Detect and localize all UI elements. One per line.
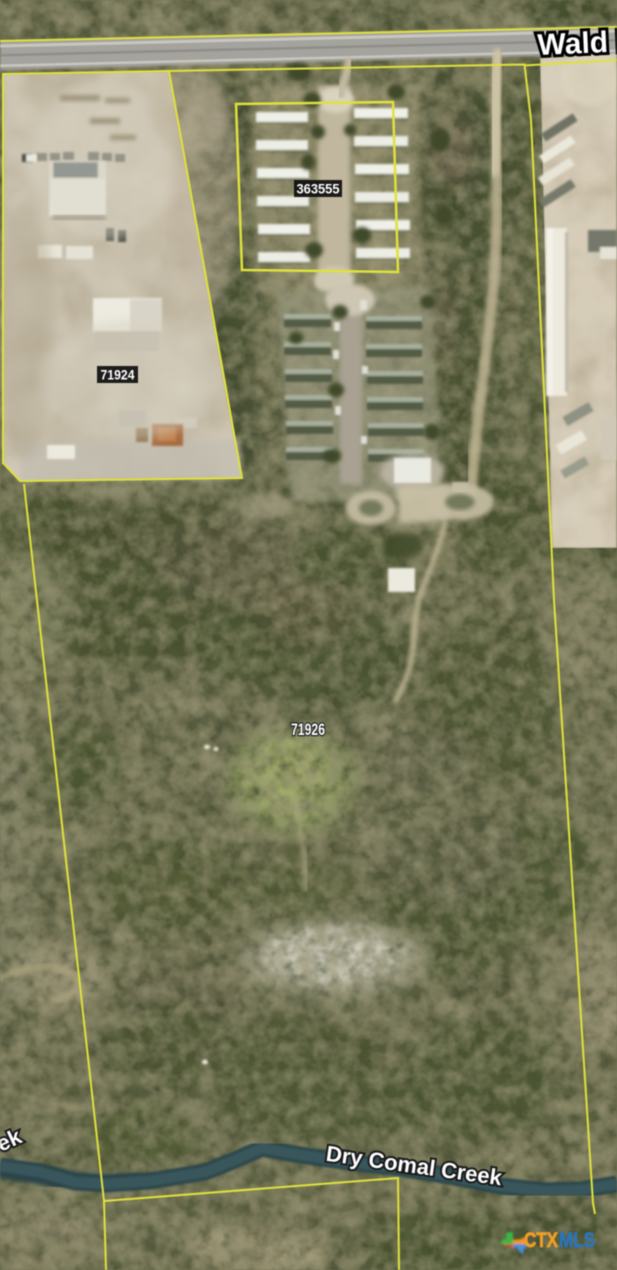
- svg-text:71924: 71924: [101, 368, 135, 383]
- svg-text:71926: 71926: [291, 720, 325, 739]
- svg-text:363555: 363555: [297, 182, 340, 197]
- svg-text:MLS: MLS: [559, 1229, 595, 1252]
- svg-text:CTX: CTX: [524, 1229, 558, 1252]
- svg-text:Wald R: Wald R: [537, 25, 617, 62]
